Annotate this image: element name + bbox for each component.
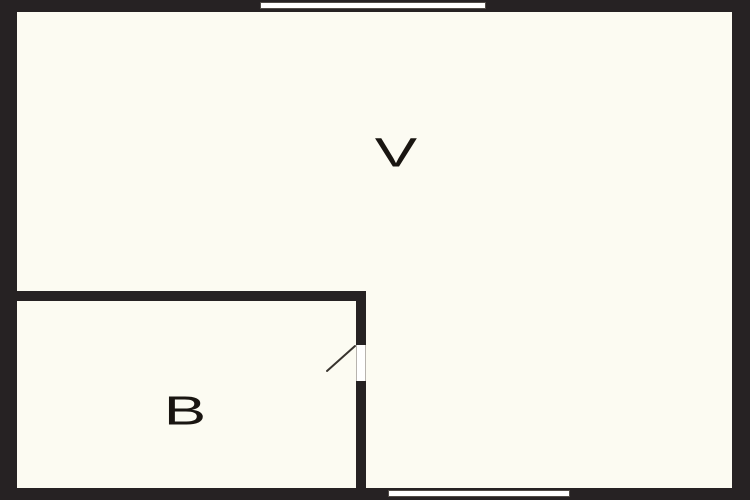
window-top-wall (260, 2, 486, 9)
room-label-b: B (164, 391, 206, 432)
interior-wall-vertical-upper (356, 301, 366, 345)
door-opening (356, 345, 366, 381)
interior-wall-horizontal (17, 291, 366, 301)
outer-wall-right (732, 0, 750, 500)
room-label-v: V (375, 133, 417, 174)
door-leaf-line (0, 0, 750, 500)
window-bottom-wall (388, 490, 570, 497)
outer-wall-left (0, 0, 17, 500)
floor-plan: V B (0, 0, 750, 500)
outer-wall-bottom (0, 488, 750, 500)
interior-wall-vertical-lower (356, 381, 366, 488)
